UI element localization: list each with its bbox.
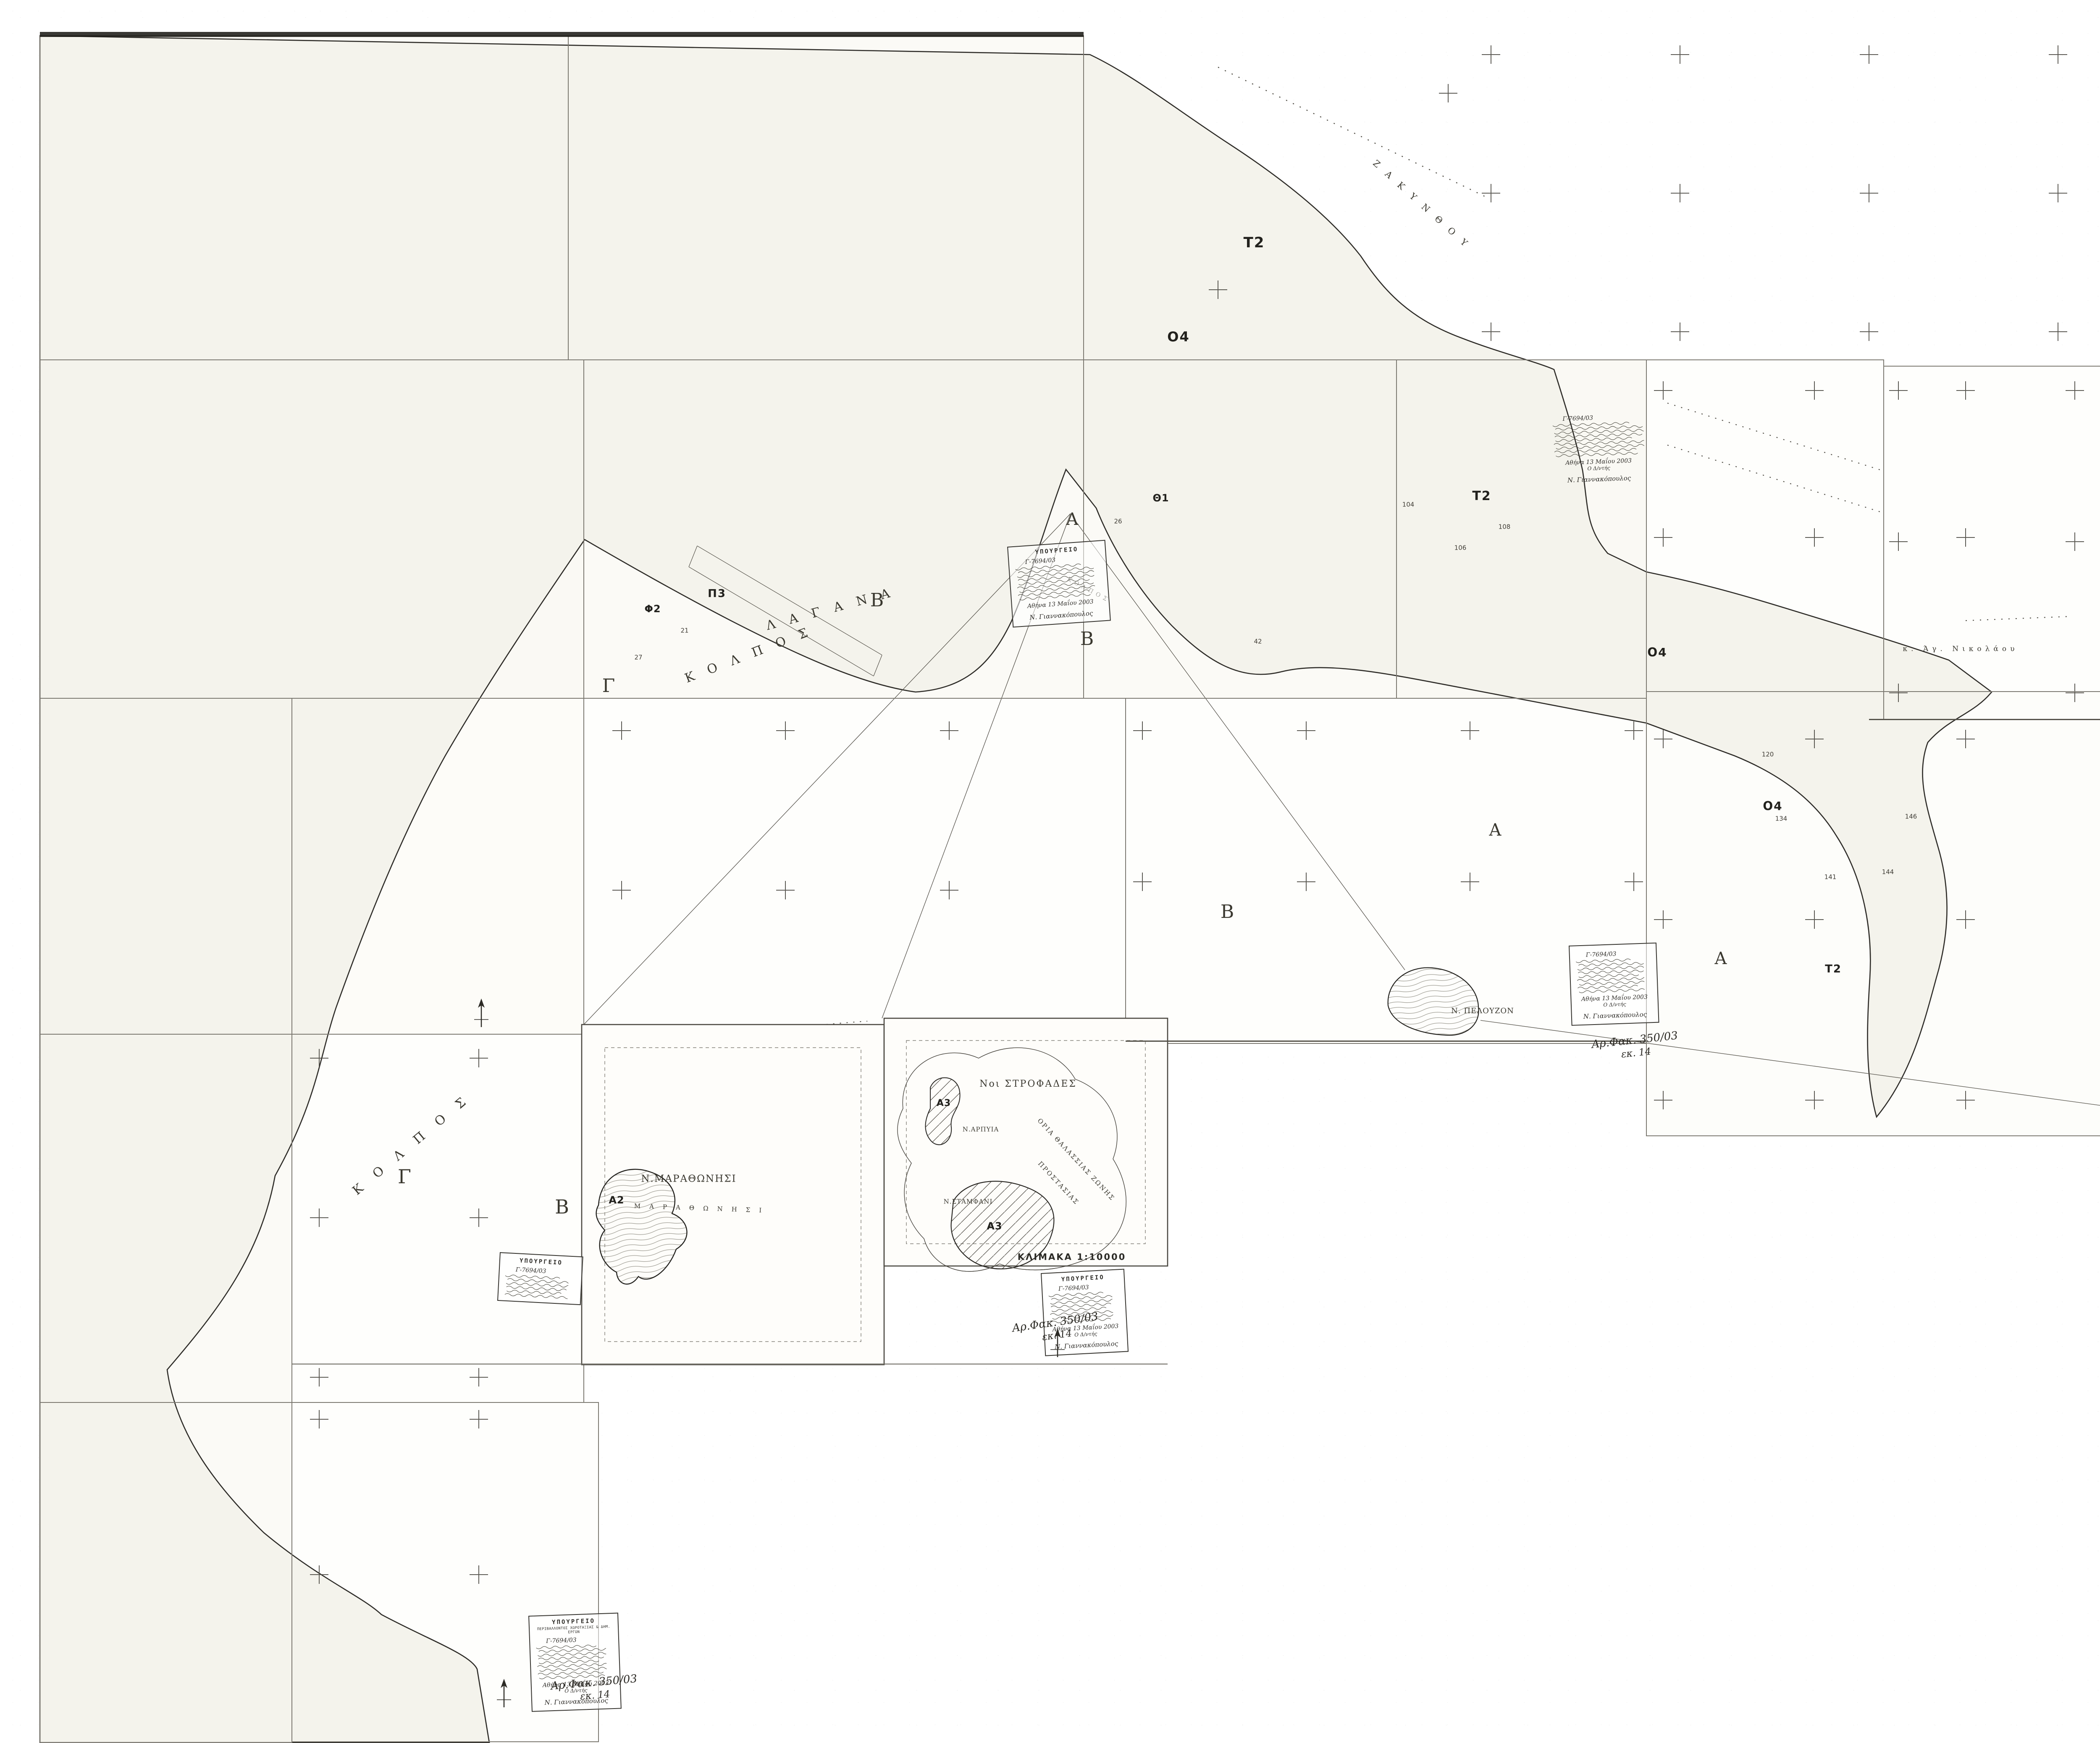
stamp-header: ΥΠΟΥΡΓΕΙΟ — [504, 1257, 578, 1267]
registration-cross-icon — [1671, 322, 1689, 341]
handwritten-text-lines — [503, 1274, 569, 1300]
handwritten-text-lines — [1013, 562, 1095, 601]
ministry-stamp: Γ-7694/03Αθήνα 13 Μαΐου 2003Ο Δ/ντήςΝ. Γ… — [1551, 410, 1646, 485]
registration-cross-icon — [2049, 45, 2067, 64]
registration-cross-icon — [1860, 184, 1878, 202]
handwritten-text-lines — [1551, 420, 1645, 458]
stamp-header: ΥΠΟΥΡΓΕΙΟ — [1046, 1273, 1120, 1284]
registration-cross-icon — [1482, 184, 1500, 202]
registration-cross-icon — [2049, 322, 2067, 341]
registration-cross-icon — [1482, 45, 1500, 64]
registration-cross-icon — [1439, 84, 1457, 102]
registration-cross-icon — [1671, 184, 1689, 202]
handwritten-text-lines — [535, 1643, 607, 1680]
map-artwork — [0, 0, 2100, 1743]
ministry-stamp: ΥΠΟΥΡΓΕΙΟΓ-7694/03 — [497, 1252, 583, 1305]
registration-cross-icon — [1860, 322, 1878, 341]
north-arrow-icon — [472, 998, 491, 1030]
stamp-subheader: ΠΕΡΙΒΑΛΛΟΝΤΟΣ ΧΩΡΟΤΑΞΙΑΣ & ΔΗΜ. ΕΡΓΩΝ — [534, 1625, 614, 1636]
stamp-signature: Ν. Γιαννακόπουλος — [1017, 608, 1105, 622]
map-canvas: ΚΛΙΜΑΚΑ 1:10000 ΚΟΛΠΟΣΛΑΓΑΝΑΚΟΛΠΟΣΚΟΛΠΟΣ… — [0, 0, 2100, 1743]
stamp-signature: Ν. Γιαννακόπουλος — [1576, 1010, 1654, 1020]
registration-cross-icon — [1482, 322, 1500, 341]
handwritten-text-lines — [1574, 957, 1645, 994]
registration-cross-icon — [2049, 184, 2067, 202]
ministry-stamp: ΥΠΟΥΡΓΕΙΟΓ-7694/03Αθήνα 13 Μαΐου 2003Ν. … — [1007, 540, 1111, 628]
north-arrow-icon — [1048, 1328, 1067, 1360]
north-arrow-icon — [494, 1678, 514, 1710]
registration-cross-icon — [1671, 45, 1689, 64]
ministry-stamp: Γ-7694/03Αθήνα 13 Μαΐου 2003Ο Δ/ντήςΝ. Γ… — [1569, 943, 1659, 1026]
registration-cross-icon — [1860, 45, 1878, 64]
